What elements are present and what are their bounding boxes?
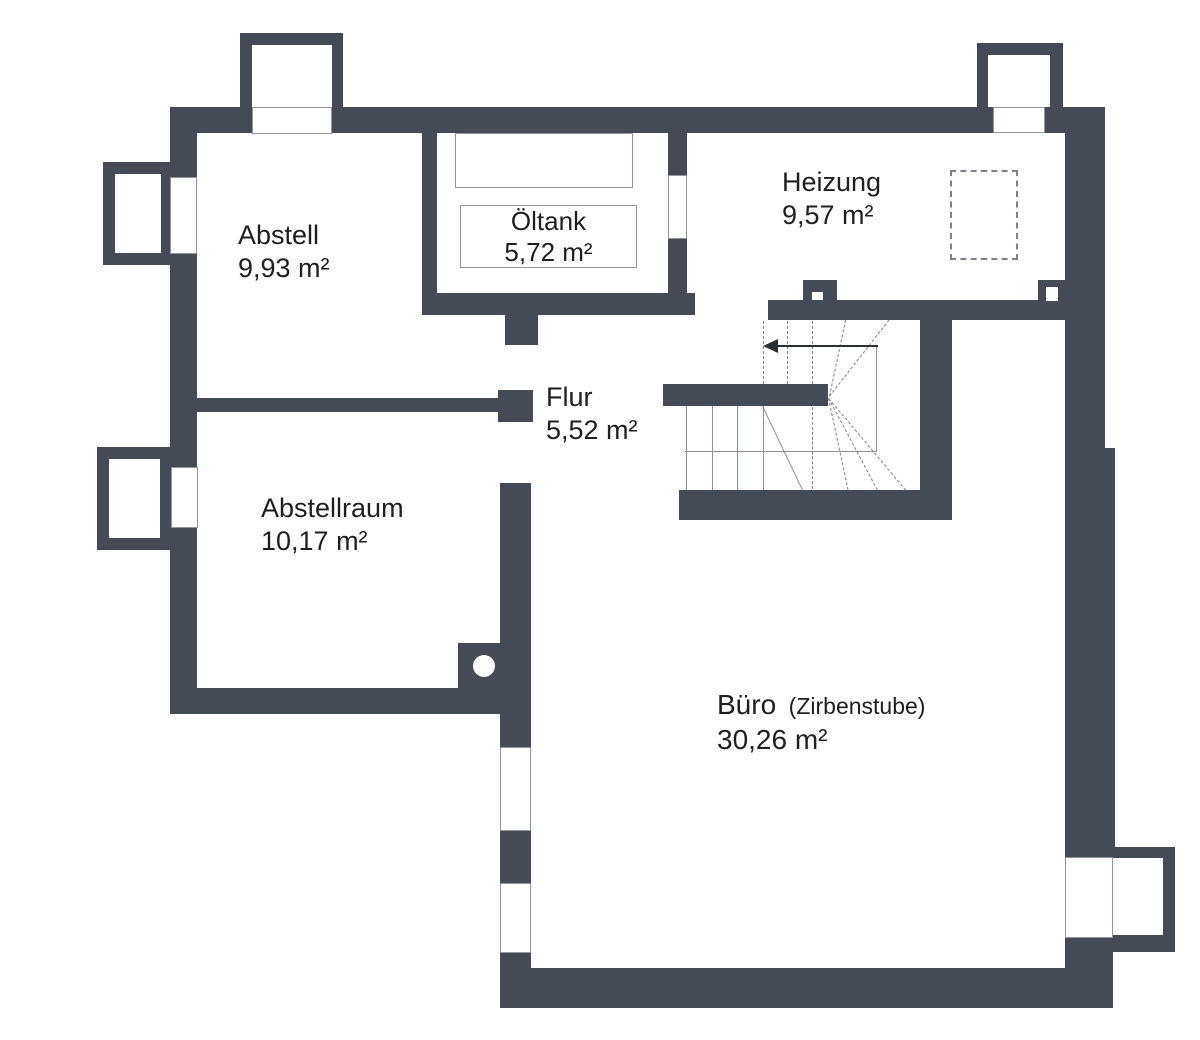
room-area: 30,26 m²: [717, 723, 925, 756]
room-label-oeltank: Öltank 5,72 m²: [460, 205, 637, 268]
oeltank-left-wall: [422, 128, 437, 315]
stair-dash-ray-down-2: [828, 398, 878, 490]
window-top-left: [252, 107, 332, 134]
stairwell-bottom-wall: [679, 490, 952, 520]
room-name-suffix: (Zirbenstube): [789, 693, 926, 719]
room-label-abstell: Abstell 9,93 m²: [238, 219, 330, 285]
wall-column-circle: [473, 655, 495, 677]
buero-left-wall-b: [500, 830, 531, 883]
bottom-wall: [500, 968, 1113, 1008]
heizung-door-post-notch: [812, 292, 823, 300]
room-name: Abstellraum: [261, 492, 404, 525]
room-name: Öltank: [511, 206, 586, 237]
stair-mid-line: [685, 451, 877, 452]
room-name: Flur: [546, 381, 638, 414]
window-buero-right: [1065, 857, 1113, 938]
stair-tread-4: [763, 406, 764, 490]
buero-left-wall-c: [500, 952, 531, 1008]
flur-door-jamb: [498, 390, 533, 422]
window-left-lower: [171, 467, 198, 528]
stair-direction-line: [777, 345, 878, 347]
window-shaft-upper-left-inner: [115, 174, 161, 253]
room-label-abstellraum: Abstellraum 10,17 m²: [261, 492, 404, 558]
stair-dash-v2: [787, 321, 788, 384]
window-top-right: [993, 107, 1045, 133]
stair-tread-3: [737, 406, 738, 490]
room-area: 10,17 m²: [261, 525, 404, 558]
room-name: Büro: [717, 689, 776, 720]
room-name: Abstell: [238, 219, 330, 252]
heizung-boiler-dashed: [950, 170, 1018, 260]
stair-dash-v4: [812, 407, 813, 489]
stair-tread-2: [712, 406, 713, 490]
window-shaft-right-inner: [1113, 858, 1163, 935]
room-label-buero: Büro (Zirbenstube) 30,26 m²: [717, 688, 925, 756]
stair-direction-arrow-icon: [763, 339, 778, 353]
oil-tank-outline: [455, 133, 633, 188]
room-area: 5,52 m²: [546, 414, 638, 447]
right-wall-upper: [1065, 107, 1105, 448]
oeltank-chimney-stub: [505, 315, 538, 345]
stair-flight-right-line: [876, 347, 877, 452]
abstell-partition-wall: [197, 398, 498, 412]
room-label-flur: Flur 5,52 m²: [546, 381, 638, 447]
room-label-heizung: Heizung 9,57 m²: [782, 166, 881, 232]
right-wall-mid: [1065, 448, 1115, 857]
room-name: Heizung: [782, 166, 881, 199]
floor-plan: Abstell 9,93 m² Öltank 5,72 m² Heizung 9…: [0, 0, 1200, 1040]
room-area: 9,57 m²: [782, 199, 881, 232]
window-buero-left-lower: [500, 883, 531, 953]
buero-left-wall-a: [500, 690, 531, 747]
stair-dash-ray-down-3: [828, 398, 906, 491]
heizung-corner-post-notch: [1046, 287, 1058, 301]
window-buero-left-upper: [500, 747, 531, 831]
left-chimney-flue: [252, 45, 332, 107]
stair-landing-bar: [663, 384, 828, 406]
stair-dash-ray-down-1: [828, 398, 849, 490]
window-left-upper: [170, 177, 197, 254]
room-area: 9,93 m²: [238, 252, 330, 285]
heizung-bottom-wall: [768, 300, 1065, 320]
stair-dash-v3: [812, 321, 813, 384]
abstellraum-bottom-wall: [170, 688, 531, 714]
room-area: 5,72 m²: [504, 237, 592, 268]
oeltank-bottom-wall: [422, 293, 695, 315]
window-oeltank-right: [668, 175, 687, 239]
stair-winder-line: [762, 406, 803, 490]
window-shaft-lower-left-inner: [109, 459, 160, 538]
stair-tread-1: [686, 406, 687, 490]
right-chimney-flue: [988, 55, 1050, 107]
